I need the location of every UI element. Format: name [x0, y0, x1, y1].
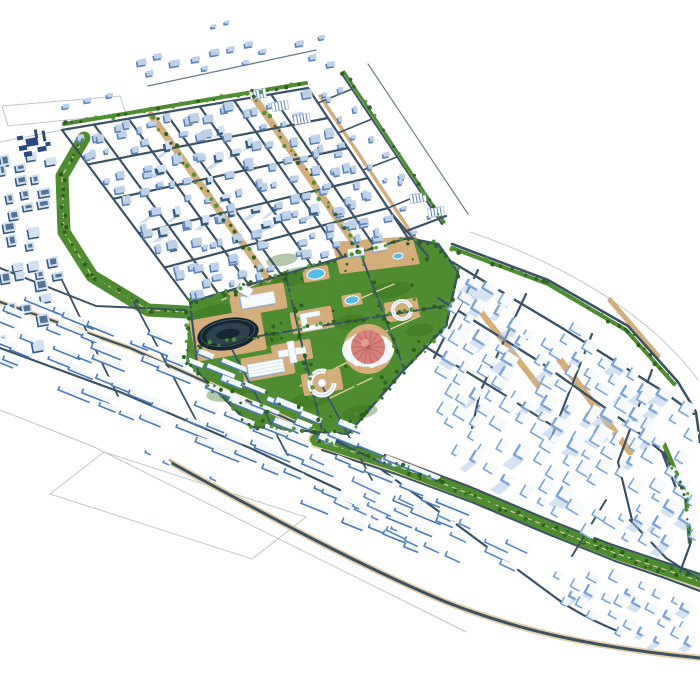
tree	[260, 283, 263, 286]
building-roof	[28, 260, 40, 271]
tree	[419, 351, 422, 354]
tree	[301, 429, 304, 432]
tree	[456, 490, 459, 493]
building	[120, 195, 131, 206]
tree	[366, 454, 369, 457]
building-roof	[203, 244, 209, 250]
tree	[649, 566, 652, 569]
tree	[352, 85, 355, 88]
tree	[422, 192, 426, 196]
tree	[342, 226, 346, 230]
tree	[567, 530, 570, 533]
tree	[313, 441, 317, 445]
tree	[207, 384, 210, 387]
tree	[117, 288, 121, 292]
building	[135, 58, 147, 67]
tree	[356, 93, 358, 95]
tree	[372, 292, 374, 294]
tree	[68, 168, 71, 171]
tree	[336, 220, 339, 223]
tree	[383, 461, 386, 464]
tree	[256, 336, 259, 339]
courtyard	[28, 244, 33, 248]
building	[270, 181, 278, 189]
tree	[182, 162, 185, 165]
building-roof	[284, 156, 294, 163]
tree	[296, 372, 299, 375]
tree	[355, 426, 358, 429]
building	[285, 433, 312, 449]
tree	[397, 310, 401, 314]
tree	[595, 546, 599, 550]
tree	[189, 101, 192, 104]
tree	[266, 278, 269, 281]
tree	[233, 230, 237, 234]
tree	[417, 340, 420, 343]
tree	[303, 370, 307, 374]
tree	[674, 382, 677, 385]
tree	[511, 267, 514, 270]
building-roof	[383, 178, 388, 182]
tree	[230, 403, 234, 407]
tree	[76, 148, 79, 151]
tree	[670, 467, 673, 470]
building	[533, 450, 549, 467]
building	[562, 469, 579, 487]
building-roof	[245, 41, 254, 47]
tree	[220, 94, 224, 98]
building-roof	[411, 230, 417, 235]
building-roof	[399, 173, 406, 180]
tree	[276, 428, 278, 430]
building	[4, 193, 15, 205]
tree	[265, 410, 269, 414]
tree	[682, 493, 685, 496]
building	[382, 178, 388, 184]
building	[600, 445, 618, 462]
tree	[289, 82, 292, 85]
building-roof	[104, 148, 109, 153]
building	[495, 437, 510, 454]
tree	[419, 477, 422, 480]
building	[103, 148, 110, 155]
building	[393, 506, 411, 518]
tree	[213, 99, 215, 101]
tree	[185, 362, 188, 365]
tree	[247, 423, 250, 426]
building-roof	[259, 48, 267, 53]
tree	[413, 298, 416, 301]
building-roof	[326, 96, 331, 102]
tree	[229, 95, 232, 98]
building-roof	[267, 265, 275, 271]
tree	[194, 181, 197, 184]
building	[627, 476, 646, 494]
road-spur	[404, 216, 446, 232]
tree	[235, 240, 238, 243]
building	[423, 540, 443, 554]
building	[320, 250, 330, 259]
building	[205, 176, 214, 185]
building-roof	[154, 53, 163, 59]
tree	[182, 355, 186, 359]
building	[488, 414, 508, 433]
tree	[71, 247, 74, 250]
building-roof	[401, 206, 408, 211]
ornate-wing	[19, 145, 28, 151]
tree	[200, 187, 203, 190]
building	[585, 570, 601, 584]
building	[152, 53, 163, 61]
building	[323, 129, 335, 140]
tree	[301, 346, 303, 348]
tree	[350, 241, 354, 245]
building	[206, 421, 228, 434]
tree	[569, 296, 573, 300]
tree	[406, 237, 410, 241]
tree	[374, 246, 378, 250]
tree	[447, 317, 450, 320]
building	[223, 20, 230, 26]
tree	[206, 343, 209, 346]
tree	[446, 257, 449, 260]
tree	[117, 113, 120, 116]
tree	[379, 383, 383, 387]
tree	[644, 566, 647, 569]
tree	[330, 442, 333, 445]
tree	[601, 313, 603, 315]
tree	[82, 268, 86, 272]
courtyard	[38, 272, 43, 276]
tree	[196, 372, 200, 376]
tree	[73, 154, 76, 157]
tree	[349, 447, 352, 450]
building	[1, 221, 16, 235]
striped-base	[271, 100, 288, 112]
building-roof	[159, 226, 169, 235]
tree	[376, 397, 380, 401]
tree	[369, 384, 371, 386]
city-render	[0, 0, 700, 700]
building	[113, 185, 125, 195]
tree	[526, 519, 530, 523]
tree	[339, 281, 342, 284]
tree	[261, 419, 265, 423]
building-roof	[236, 188, 243, 196]
building	[309, 232, 317, 240]
tree	[401, 360, 405, 364]
tree	[656, 570, 660, 574]
tree	[297, 336, 301, 340]
tree	[593, 310, 597, 314]
tree	[613, 554, 617, 558]
tree	[317, 439, 321, 443]
tree	[394, 375, 396, 377]
tree	[305, 324, 309, 328]
tree	[145, 305, 148, 308]
tree	[618, 324, 622, 328]
tree	[392, 240, 396, 244]
building-roof	[291, 194, 301, 204]
tree	[348, 395, 352, 399]
building	[46, 256, 59, 269]
tree	[253, 337, 256, 340]
building	[121, 120, 131, 131]
tree	[349, 78, 352, 81]
tree	[407, 472, 411, 476]
building	[24, 241, 35, 252]
building	[19, 189, 31, 201]
tree	[214, 204, 219, 209]
building-roof	[338, 142, 345, 148]
tree	[94, 116, 97, 119]
tree	[610, 547, 613, 550]
tree	[329, 415, 332, 418]
tree	[284, 272, 289, 277]
tree	[213, 384, 216, 387]
building	[297, 239, 309, 248]
tree	[390, 463, 392, 465]
tree	[382, 129, 385, 132]
building	[174, 270, 185, 281]
tree	[428, 198, 431, 201]
building-roof	[225, 170, 235, 178]
building-roof	[185, 194, 192, 200]
tree	[360, 417, 364, 421]
tree	[679, 481, 682, 484]
tree	[296, 317, 300, 321]
tree	[103, 115, 106, 118]
tree	[202, 375, 205, 378]
tree	[332, 310, 335, 313]
tree	[418, 240, 422, 244]
tree	[179, 102, 183, 106]
building-roof	[302, 499, 332, 514]
tree	[77, 144, 79, 146]
building	[308, 54, 318, 62]
tree	[378, 124, 381, 127]
tree	[289, 292, 293, 296]
building-roof	[173, 159, 179, 165]
tree	[240, 335, 243, 338]
building	[415, 526, 436, 538]
tree	[354, 449, 358, 453]
building	[677, 399, 696, 418]
tree	[231, 406, 235, 410]
tree	[627, 553, 631, 557]
tree	[620, 550, 624, 554]
tree	[453, 264, 455, 266]
tree	[572, 539, 576, 543]
tree	[310, 385, 314, 389]
tree	[135, 299, 139, 303]
tree	[289, 332, 291, 334]
tree	[413, 174, 416, 177]
tree	[327, 205, 330, 208]
tree	[84, 117, 89, 122]
tree	[111, 116, 115, 120]
tree	[383, 388, 387, 392]
building	[289, 194, 301, 205]
tree	[86, 274, 89, 277]
building	[325, 61, 336, 69]
tree	[70, 159, 73, 162]
tree	[384, 244, 387, 247]
tree	[388, 330, 392, 334]
building-roof	[325, 129, 335, 138]
building-roof	[211, 24, 216, 28]
tree	[624, 328, 627, 331]
building	[291, 210, 299, 218]
tree	[292, 426, 296, 430]
tree	[247, 247, 251, 251]
tree	[325, 438, 329, 442]
building-roof	[334, 169, 341, 176]
building-roof	[210, 262, 219, 271]
building-roof	[251, 107, 258, 116]
tree	[432, 335, 436, 339]
tree	[403, 162, 406, 165]
tree	[387, 138, 390, 141]
tree	[465, 251, 468, 254]
building	[33, 278, 48, 292]
tree	[61, 187, 65, 191]
building	[294, 40, 305, 48]
tree	[271, 325, 275, 329]
tree	[666, 450, 670, 454]
building	[139, 187, 151, 197]
tree	[404, 270, 406, 272]
building-roof	[260, 123, 267, 129]
tree	[225, 338, 229, 342]
tree	[450, 297, 455, 302]
tree	[349, 420, 352, 423]
tree	[192, 173, 196, 177]
tree	[157, 117, 160, 120]
tree	[349, 252, 354, 257]
tree	[674, 573, 678, 577]
building-roof	[290, 175, 299, 182]
dome-apex	[367, 346, 370, 349]
tree	[184, 310, 188, 314]
tree	[91, 273, 94, 276]
building	[250, 140, 262, 152]
building	[322, 183, 332, 191]
tree	[58, 199, 63, 204]
tree	[426, 342, 430, 346]
tree	[437, 213, 439, 215]
tree	[160, 309, 163, 312]
tree	[334, 213, 337, 216]
building	[162, 113, 171, 124]
tree	[579, 301, 583, 305]
tree	[295, 328, 298, 331]
building	[13, 271, 25, 282]
tree	[524, 274, 527, 277]
building	[368, 136, 375, 144]
tree	[516, 510, 520, 514]
building	[467, 429, 480, 442]
tree	[398, 152, 401, 155]
tree	[349, 431, 351, 433]
ornate-wing	[45, 142, 51, 147]
tree	[451, 283, 454, 286]
building-roof	[300, 155, 309, 161]
tree	[219, 388, 223, 392]
tree	[265, 332, 268, 335]
building-roof	[292, 210, 299, 216]
tree	[406, 242, 410, 246]
tree	[297, 405, 301, 409]
tree	[498, 508, 502, 512]
building	[102, 178, 110, 186]
tree	[679, 573, 683, 577]
building-roof	[312, 165, 322, 175]
tree	[357, 250, 362, 255]
building-roof	[338, 87, 344, 93]
tree	[372, 281, 376, 285]
tree	[274, 125, 277, 128]
building-roof	[97, 134, 105, 142]
tree	[665, 373, 669, 377]
building	[594, 381, 612, 397]
tree	[441, 480, 445, 484]
building	[482, 461, 498, 476]
tree	[414, 357, 417, 360]
building-roof	[351, 135, 356, 139]
tree	[633, 334, 635, 336]
building-roof	[227, 46, 235, 52]
tree	[274, 274, 278, 278]
tree	[278, 329, 282, 333]
tree	[442, 323, 446, 327]
building-roof	[202, 215, 211, 224]
tree	[226, 380, 228, 382]
tree	[380, 311, 384, 315]
tree	[519, 271, 523, 275]
building	[190, 56, 201, 64]
building-roof	[310, 203, 320, 213]
tree	[347, 380, 349, 382]
tree	[659, 367, 662, 370]
building	[0, 315, 18, 329]
tree	[410, 283, 414, 287]
building	[607, 568, 624, 585]
tree	[110, 287, 114, 291]
tree	[195, 301, 198, 304]
tree	[424, 351, 426, 353]
spiral-core	[318, 379, 326, 387]
tree	[440, 222, 443, 225]
road	[338, 119, 372, 133]
tree	[382, 316, 386, 320]
tree	[248, 280, 252, 284]
building	[545, 464, 562, 481]
building	[208, 48, 220, 57]
building-roof	[210, 48, 220, 55]
building-roof	[383, 152, 390, 157]
tree	[297, 324, 301, 328]
tree	[472, 492, 474, 494]
tree	[636, 343, 640, 347]
building	[349, 135, 356, 141]
tree	[188, 298, 192, 302]
building	[14, 163, 27, 174]
building-roof	[310, 232, 316, 238]
tree	[680, 486, 684, 490]
tree	[342, 397, 346, 401]
tree	[124, 113, 127, 116]
